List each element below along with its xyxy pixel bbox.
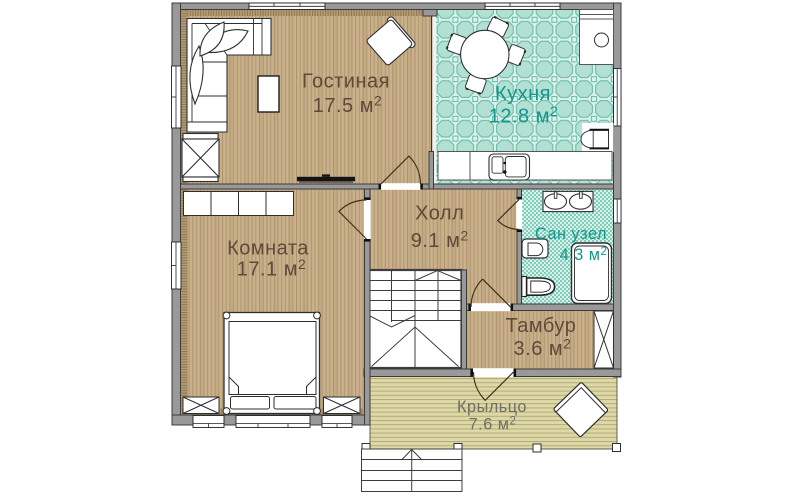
svg-text:17.1 м2: 17.1 м2 <box>237 256 307 281</box>
svg-text:Сан узел: Сан узел <box>535 225 607 243</box>
svg-text:Холл: Холл <box>415 202 464 224</box>
svg-text:Кухня: Кухня <box>495 83 551 105</box>
svg-text:7.6 м2: 7.6 м2 <box>469 415 517 433</box>
svg-text:4.3 м2: 4.3 м2 <box>560 246 608 264</box>
svg-text:9.1 м2: 9.1 м2 <box>411 227 469 252</box>
svg-text:Крыльцо: Крыльцо <box>457 398 527 416</box>
svg-text:Комната: Комната <box>227 238 309 260</box>
svg-text:Гостиная: Гостиная <box>302 71 390 93</box>
svg-text:12.8 м2: 12.8 м2 <box>489 103 559 128</box>
svg-text:3.6 м2: 3.6 м2 <box>514 336 572 361</box>
svg-text:Тамбур: Тамбур <box>505 315 576 337</box>
svg-text:17.5 м2: 17.5 м2 <box>313 93 383 118</box>
